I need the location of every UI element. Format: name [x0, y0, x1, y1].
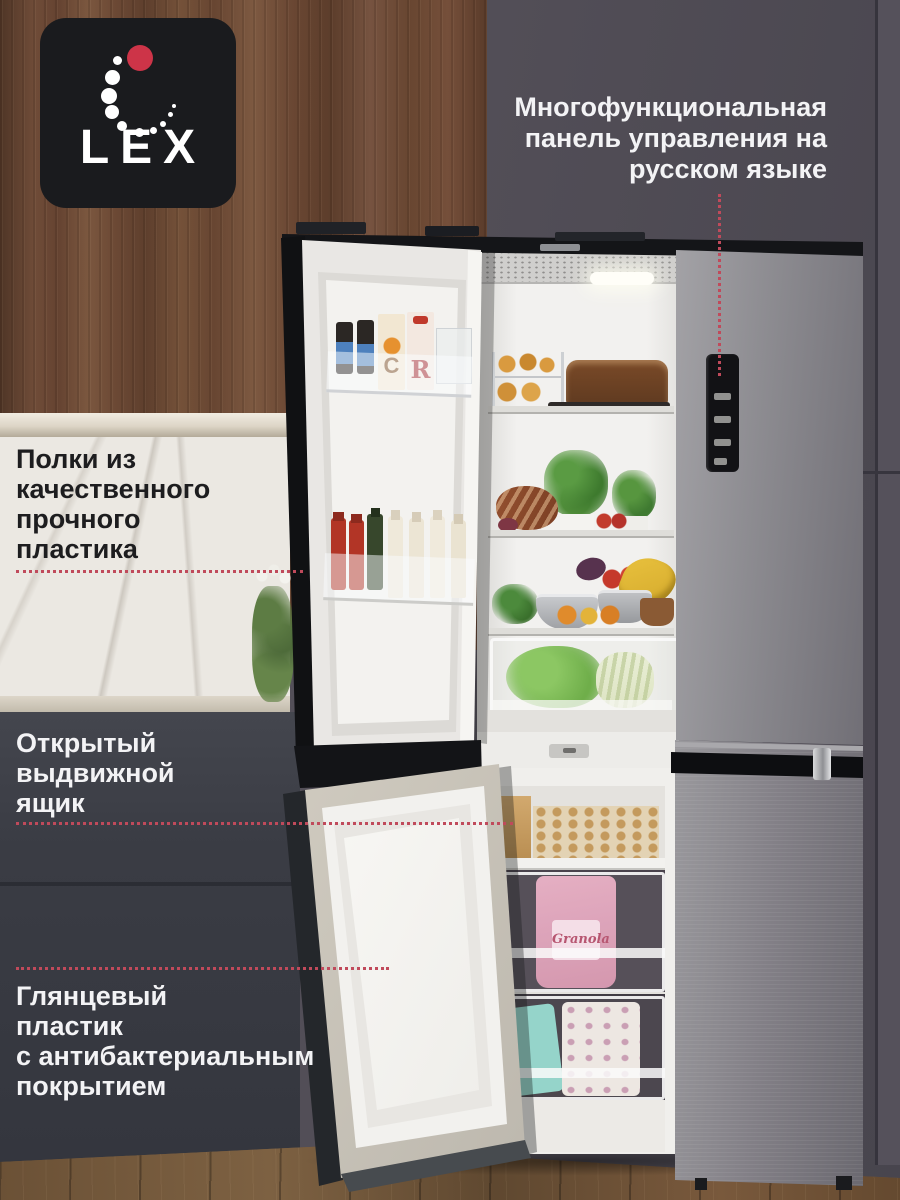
fridge-shelf-2	[488, 530, 674, 538]
door-milk-bottle-1-cap	[391, 510, 400, 520]
lex-logo-dot-9	[168, 112, 173, 117]
control-panel-button-2	[714, 416, 731, 423]
kitchen-product-scene: Granola NUT GRANOLA C R	[0, 0, 900, 1200]
fridge-upper-right-door	[676, 248, 863, 745]
food-bread-loaf	[566, 360, 668, 406]
lex-logo-dot-4	[105, 105, 119, 119]
food-muffin-rack	[492, 352, 564, 408]
lex-logo-dot-3	[101, 88, 117, 104]
annotation-line: Многофункциональная	[514, 92, 827, 123]
wall-right-panel	[878, 0, 900, 1165]
lex-logo-text: LEX	[40, 122, 236, 175]
fridge-hinge-1	[296, 222, 366, 234]
annotation-line: с антибактериальным	[16, 1041, 314, 1071]
annotation-line: Открытый	[16, 728, 175, 758]
annotation-control-panel: Многофункциональная панель управления на…	[514, 92, 827, 185]
control-panel-button-4	[714, 458, 727, 465]
annotation-coating: Глянцевый пластик с антибактериальным по…	[16, 981, 314, 1101]
fridge-foot-left	[695, 1178, 707, 1190]
annotation-line: Полки из	[16, 444, 210, 474]
fridge-shelf-3	[488, 628, 674, 636]
lex-logo-dot-2	[105, 70, 120, 85]
annotation-line: прочного	[16, 504, 210, 534]
annotation-line: покрытием	[16, 1071, 314, 1101]
leader-line-drawer	[16, 822, 513, 825]
door-milk-bottle-3-cap	[433, 510, 442, 520]
door-milk-bottle-4-cap	[454, 514, 463, 524]
control-panel-button-3	[714, 439, 731, 446]
fridge-lower-right-door	[675, 740, 863, 1186]
food-wood-bowl	[640, 598, 674, 626]
food-tomatoes-small	[596, 512, 628, 530]
lex-logo: LEX	[40, 18, 236, 208]
door-green-bottle-cap	[371, 508, 380, 517]
freezer-dumplings-tray	[533, 806, 659, 862]
fridge-foot-right	[836, 1176, 852, 1190]
fridge-hinge-2	[425, 226, 479, 236]
leader-line-control-panel	[718, 194, 721, 376]
lower-cabinet-seam	[0, 882, 300, 886]
annotation-drawer: Открытый выдвижной ящик	[16, 728, 175, 818]
annotation-line: Глянцевый	[16, 981, 314, 1011]
annotation-line: качественного	[16, 474, 210, 504]
fridge-handle-chrome	[813, 748, 831, 780]
annotation-shelves: Полки из качественного прочного пластика	[16, 444, 210, 564]
lex-logo-red-dot	[127, 45, 153, 71]
freezer-drawer-1-rail	[501, 948, 665, 958]
leader-line-coating	[16, 967, 389, 970]
annotation-line: пластик	[16, 1011, 314, 1041]
door-milk-bottle-2-cap	[412, 512, 421, 522]
annotation-line: ящик	[16, 788, 175, 818]
annotation-line: выдвижной	[16, 758, 175, 788]
door-bin-2	[323, 553, 475, 606]
freezer-latch-slot	[563, 748, 576, 753]
annotation-line: пластика	[16, 534, 210, 564]
plant-foliage	[252, 586, 294, 702]
door-carton-r-tag	[413, 316, 428, 324]
food-greens-left	[492, 584, 538, 624]
fridge-shelf-1	[488, 406, 674, 414]
control-panel-button-1	[714, 393, 731, 400]
wall-right-seam	[863, 471, 900, 474]
annotation-line: русском языке	[514, 154, 827, 185]
wood-shelf-edge	[0, 413, 290, 437]
fridge-control-panel	[706, 354, 739, 472]
fridge-interior-lamp	[590, 272, 654, 285]
fridge-hinge-3	[555, 232, 645, 241]
freezer-shelf-lip	[497, 858, 665, 870]
lex-logo-dot-10	[172, 104, 176, 108]
food-lettuce	[506, 646, 602, 708]
door-red-bottle-1-cap	[333, 512, 344, 521]
door-bin-1	[326, 351, 472, 398]
annotation-line: панель управления на	[514, 123, 827, 154]
door-red-bottle-2-cap	[351, 514, 362, 523]
leader-line-shelves	[16, 570, 303, 573]
fridge-hinge-metal	[540, 244, 580, 251]
lex-logo-dot-1	[113, 56, 122, 65]
food-oranges	[556, 604, 628, 626]
freezer-drawer-1-front	[501, 872, 665, 992]
